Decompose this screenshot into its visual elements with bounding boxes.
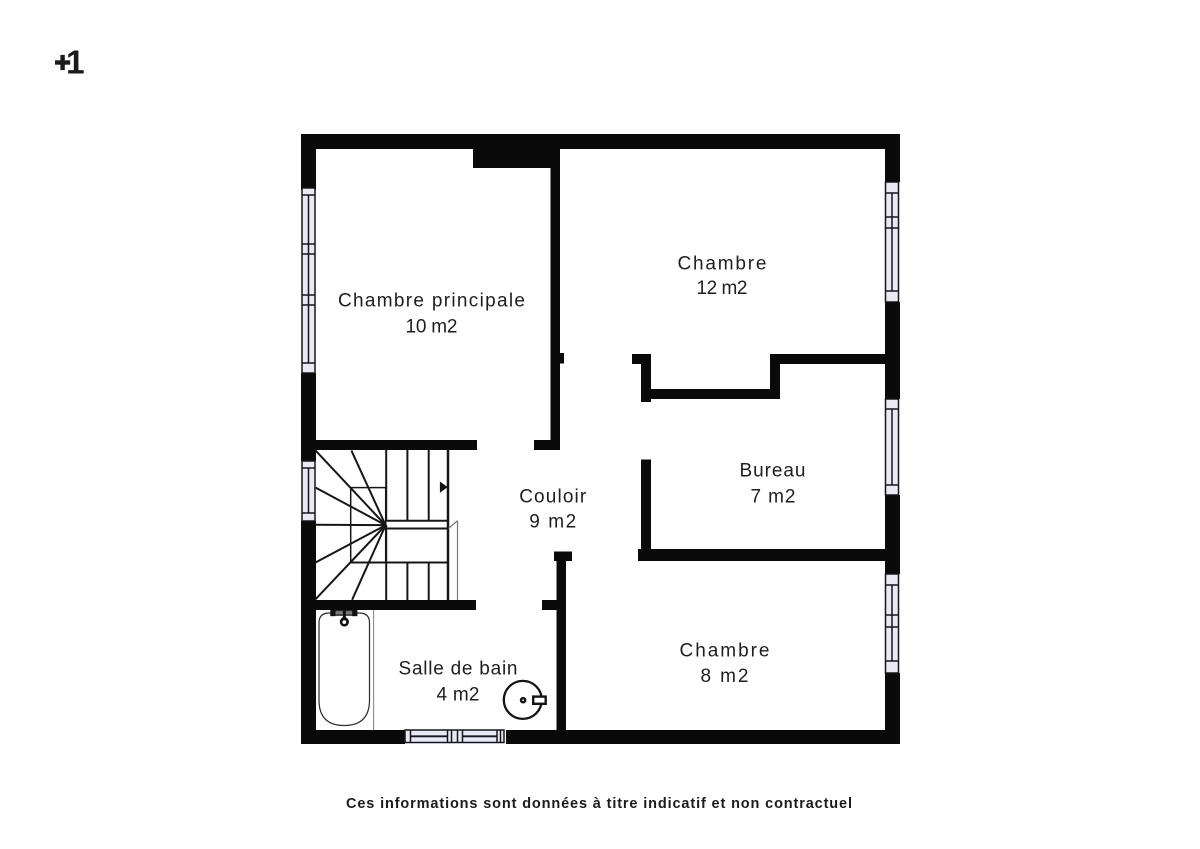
svg-text:Couloir: Couloir — [519, 487, 587, 508]
svg-text:Chambre: Chambre — [680, 640, 770, 661]
svg-text:4 m2: 4 m2 — [437, 685, 480, 706]
svg-text:7 m2: 7 m2 — [751, 487, 796, 508]
svg-text:Ces informations sont données: Ces informations sont données à titre in… — [346, 796, 852, 812]
svg-text:9 m2: 9 m2 — [529, 511, 576, 532]
svg-text:Bureau: Bureau — [740, 460, 806, 481]
svg-text:10 m2: 10 m2 — [406, 317, 458, 338]
svg-text:1: 1 — [66, 44, 85, 81]
svg-text:Salle de bain: Salle de bain — [399, 659, 518, 680]
svg-text:Chambre principale: Chambre principale — [338, 291, 525, 312]
svg-text:Chambre: Chambre — [678, 253, 767, 274]
svg-text:12 m2: 12 m2 — [697, 278, 748, 299]
svg-text:8 m2: 8 m2 — [701, 666, 749, 687]
